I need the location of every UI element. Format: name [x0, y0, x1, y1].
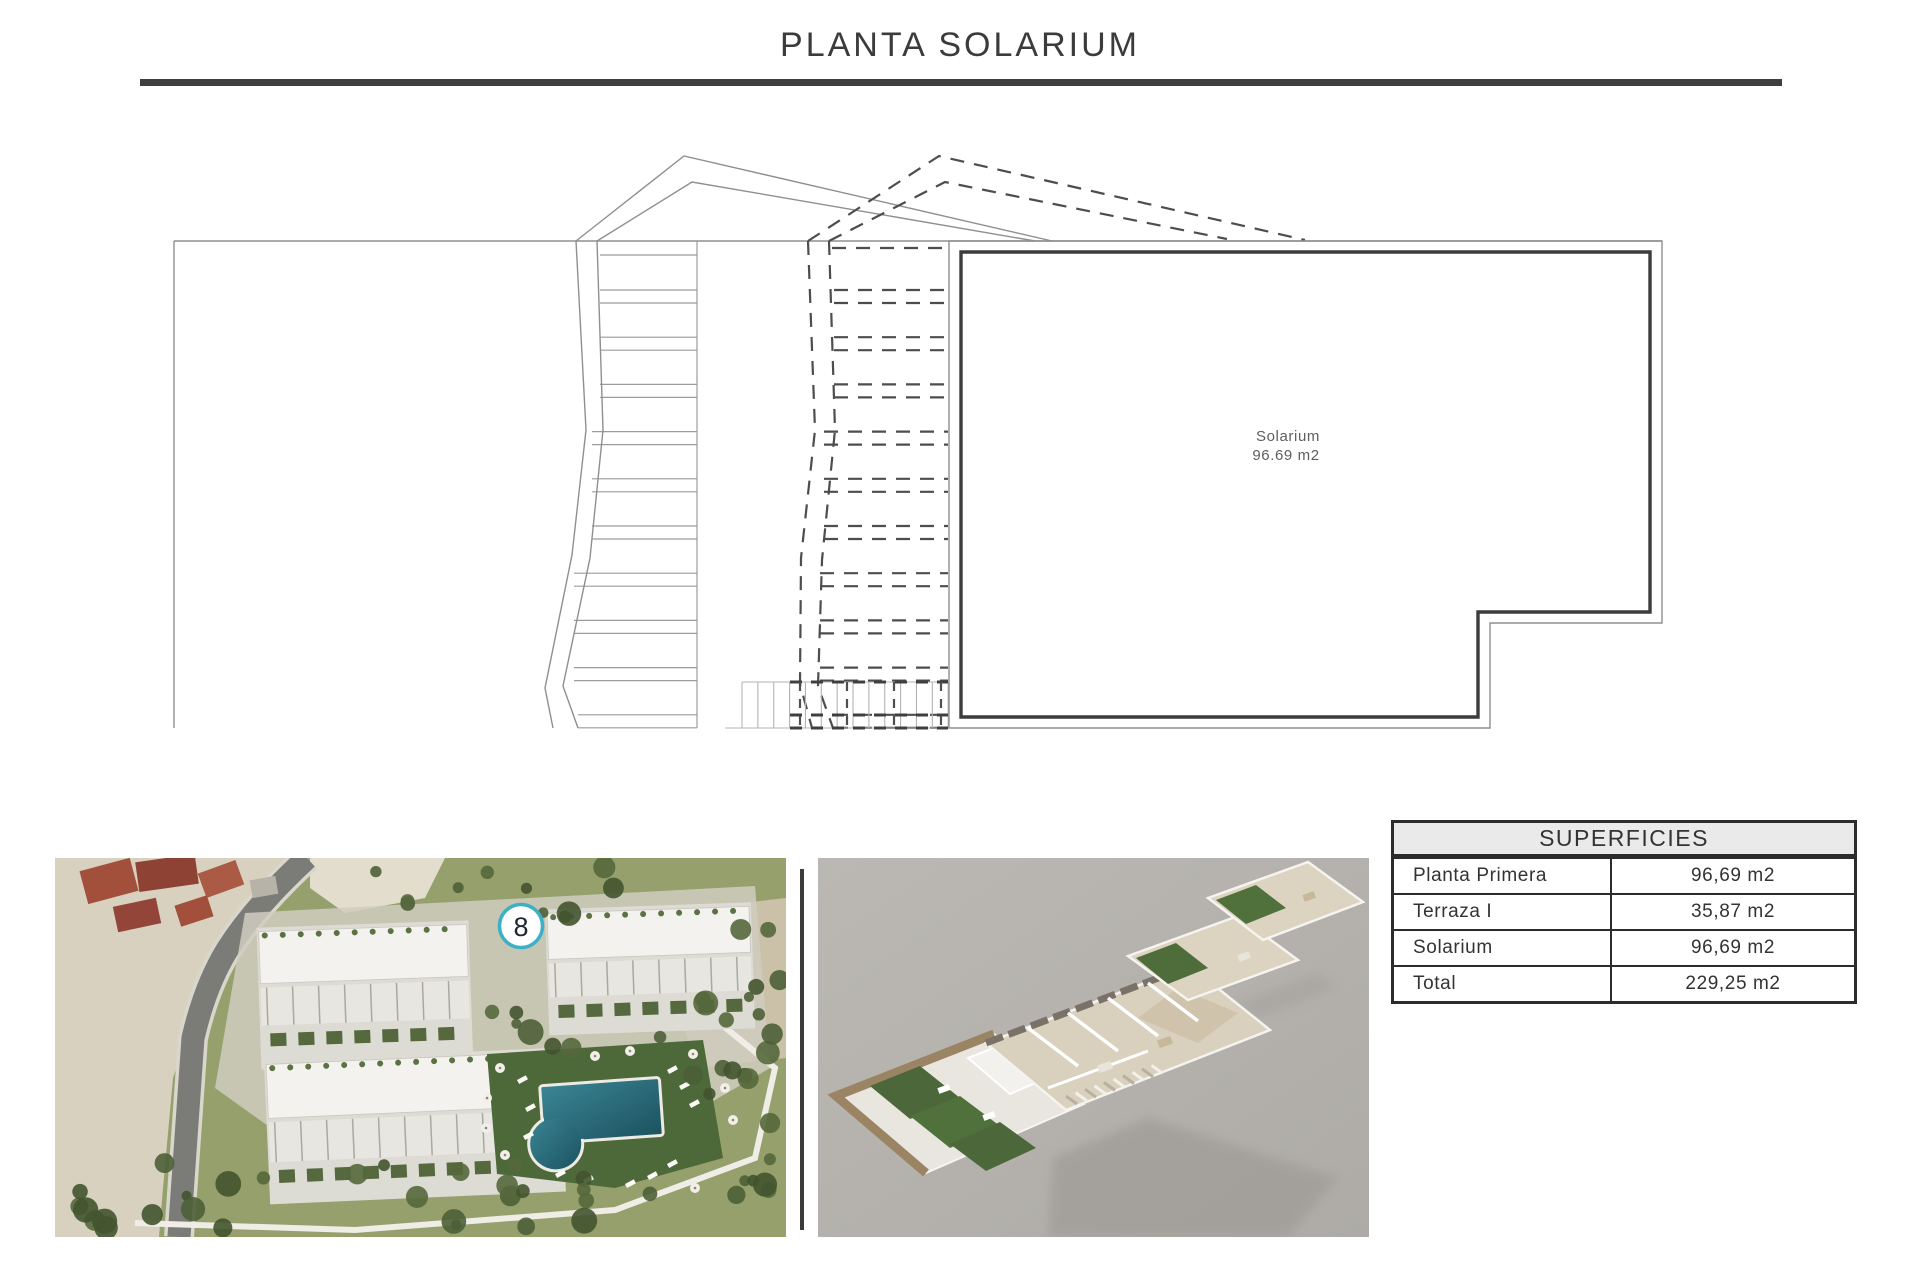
- table-row: Terraza I 35,87 m2: [1394, 893, 1854, 929]
- table-header: SUPERFICIES: [1394, 823, 1854, 857]
- row-value: 96,69 m2: [1612, 931, 1854, 965]
- displaced-steps-dashed: [820, 248, 948, 728]
- photo-render-divider: [800, 869, 804, 1230]
- row-label: Planta Primera: [1394, 859, 1612, 893]
- room-area-label: 96.69 m2: [1252, 447, 1319, 464]
- unit-number-label: 8: [513, 912, 528, 942]
- solarium-outline: [949, 241, 1662, 728]
- room-label: Solarium 96.69 m2: [1252, 428, 1320, 464]
- plot-boundary: [174, 241, 1662, 728]
- stairs-strip: [725, 682, 948, 728]
- roof-outline-dashed: [800, 156, 1305, 728]
- unit-number-badge: 8: [500, 905, 543, 948]
- terraced-steps: [545, 241, 697, 728]
- superficies-table: SUPERFICIES Planta Primera 96,69 m2 Terr…: [1391, 820, 1857, 1004]
- row-label: Solarium: [1394, 931, 1612, 965]
- iso-floorplan-render: [818, 858, 1369, 1237]
- table-row: Solarium 96,69 m2: [1394, 929, 1854, 965]
- plan-page: PLANTA SOLARIUM: [0, 0, 1920, 1280]
- roof-outline: [576, 156, 1052, 241]
- building-row-upper: [256, 920, 473, 1069]
- aerial-photo: 8: [55, 858, 786, 1237]
- row-label: Total: [1394, 967, 1612, 1001]
- room-name-label: Solarium: [1256, 428, 1320, 445]
- row-value: 35,87 m2: [1612, 895, 1854, 929]
- table-row: Total 229,25 m2: [1394, 965, 1854, 1001]
- row-label: Terraza I: [1394, 895, 1612, 929]
- table-row: Planta Primera 96,69 m2: [1394, 857, 1854, 893]
- solarium-inner-wall: [961, 252, 1650, 717]
- row-value: 96,69 m2: [1612, 859, 1854, 893]
- row-value: 229,25 m2: [1612, 967, 1854, 1001]
- floor-plan-drawing: Solarium 96.69 m2: [0, 0, 1920, 800]
